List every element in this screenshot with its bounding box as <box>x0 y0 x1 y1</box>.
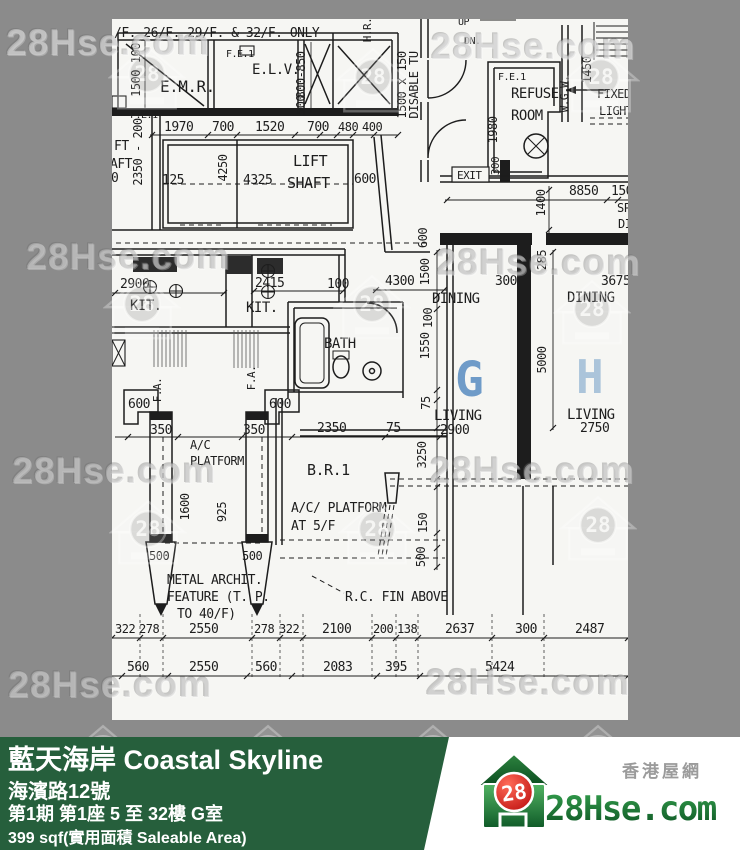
watermark-text: 28Hse.com <box>431 26 635 68</box>
estate-title: 藍天海岸 Coastal Skyline <box>8 738 323 777</box>
logo-28-number: 28 <box>500 779 528 806</box>
watermark-text: 28Hse.com <box>12 450 216 492</box>
listing-floorplan-image: /F. 26/F. 29/F. & 32/F. ONLYE.M.R.F.E.1F… <box>0 0 740 850</box>
unit-info: 第1期 第1座 5 至 32樓 G室 <box>8 800 223 826</box>
site-name-cn: 香港屋網 <box>622 757 702 782</box>
watermark-text: 28Hse.com <box>426 662 630 704</box>
saleable-area: 399 sqf(實用面積 Saleable Area) <box>8 824 247 848</box>
watermark-text: 28Hse.com <box>436 242 640 284</box>
site-name: 28Hse.com <box>545 789 717 829</box>
watermark-house-layer: 28 <box>0 0 740 737</box>
house-icon: 28 <box>478 754 550 828</box>
watermark-text: 28Hse.com <box>8 664 212 706</box>
watermark-text: 28Hse.com <box>430 450 634 492</box>
watermark-text: 28Hse.com <box>26 236 230 278</box>
watermark-house-icon <box>66 46 637 737</box>
watermark-text: 28Hse.com <box>6 22 210 64</box>
